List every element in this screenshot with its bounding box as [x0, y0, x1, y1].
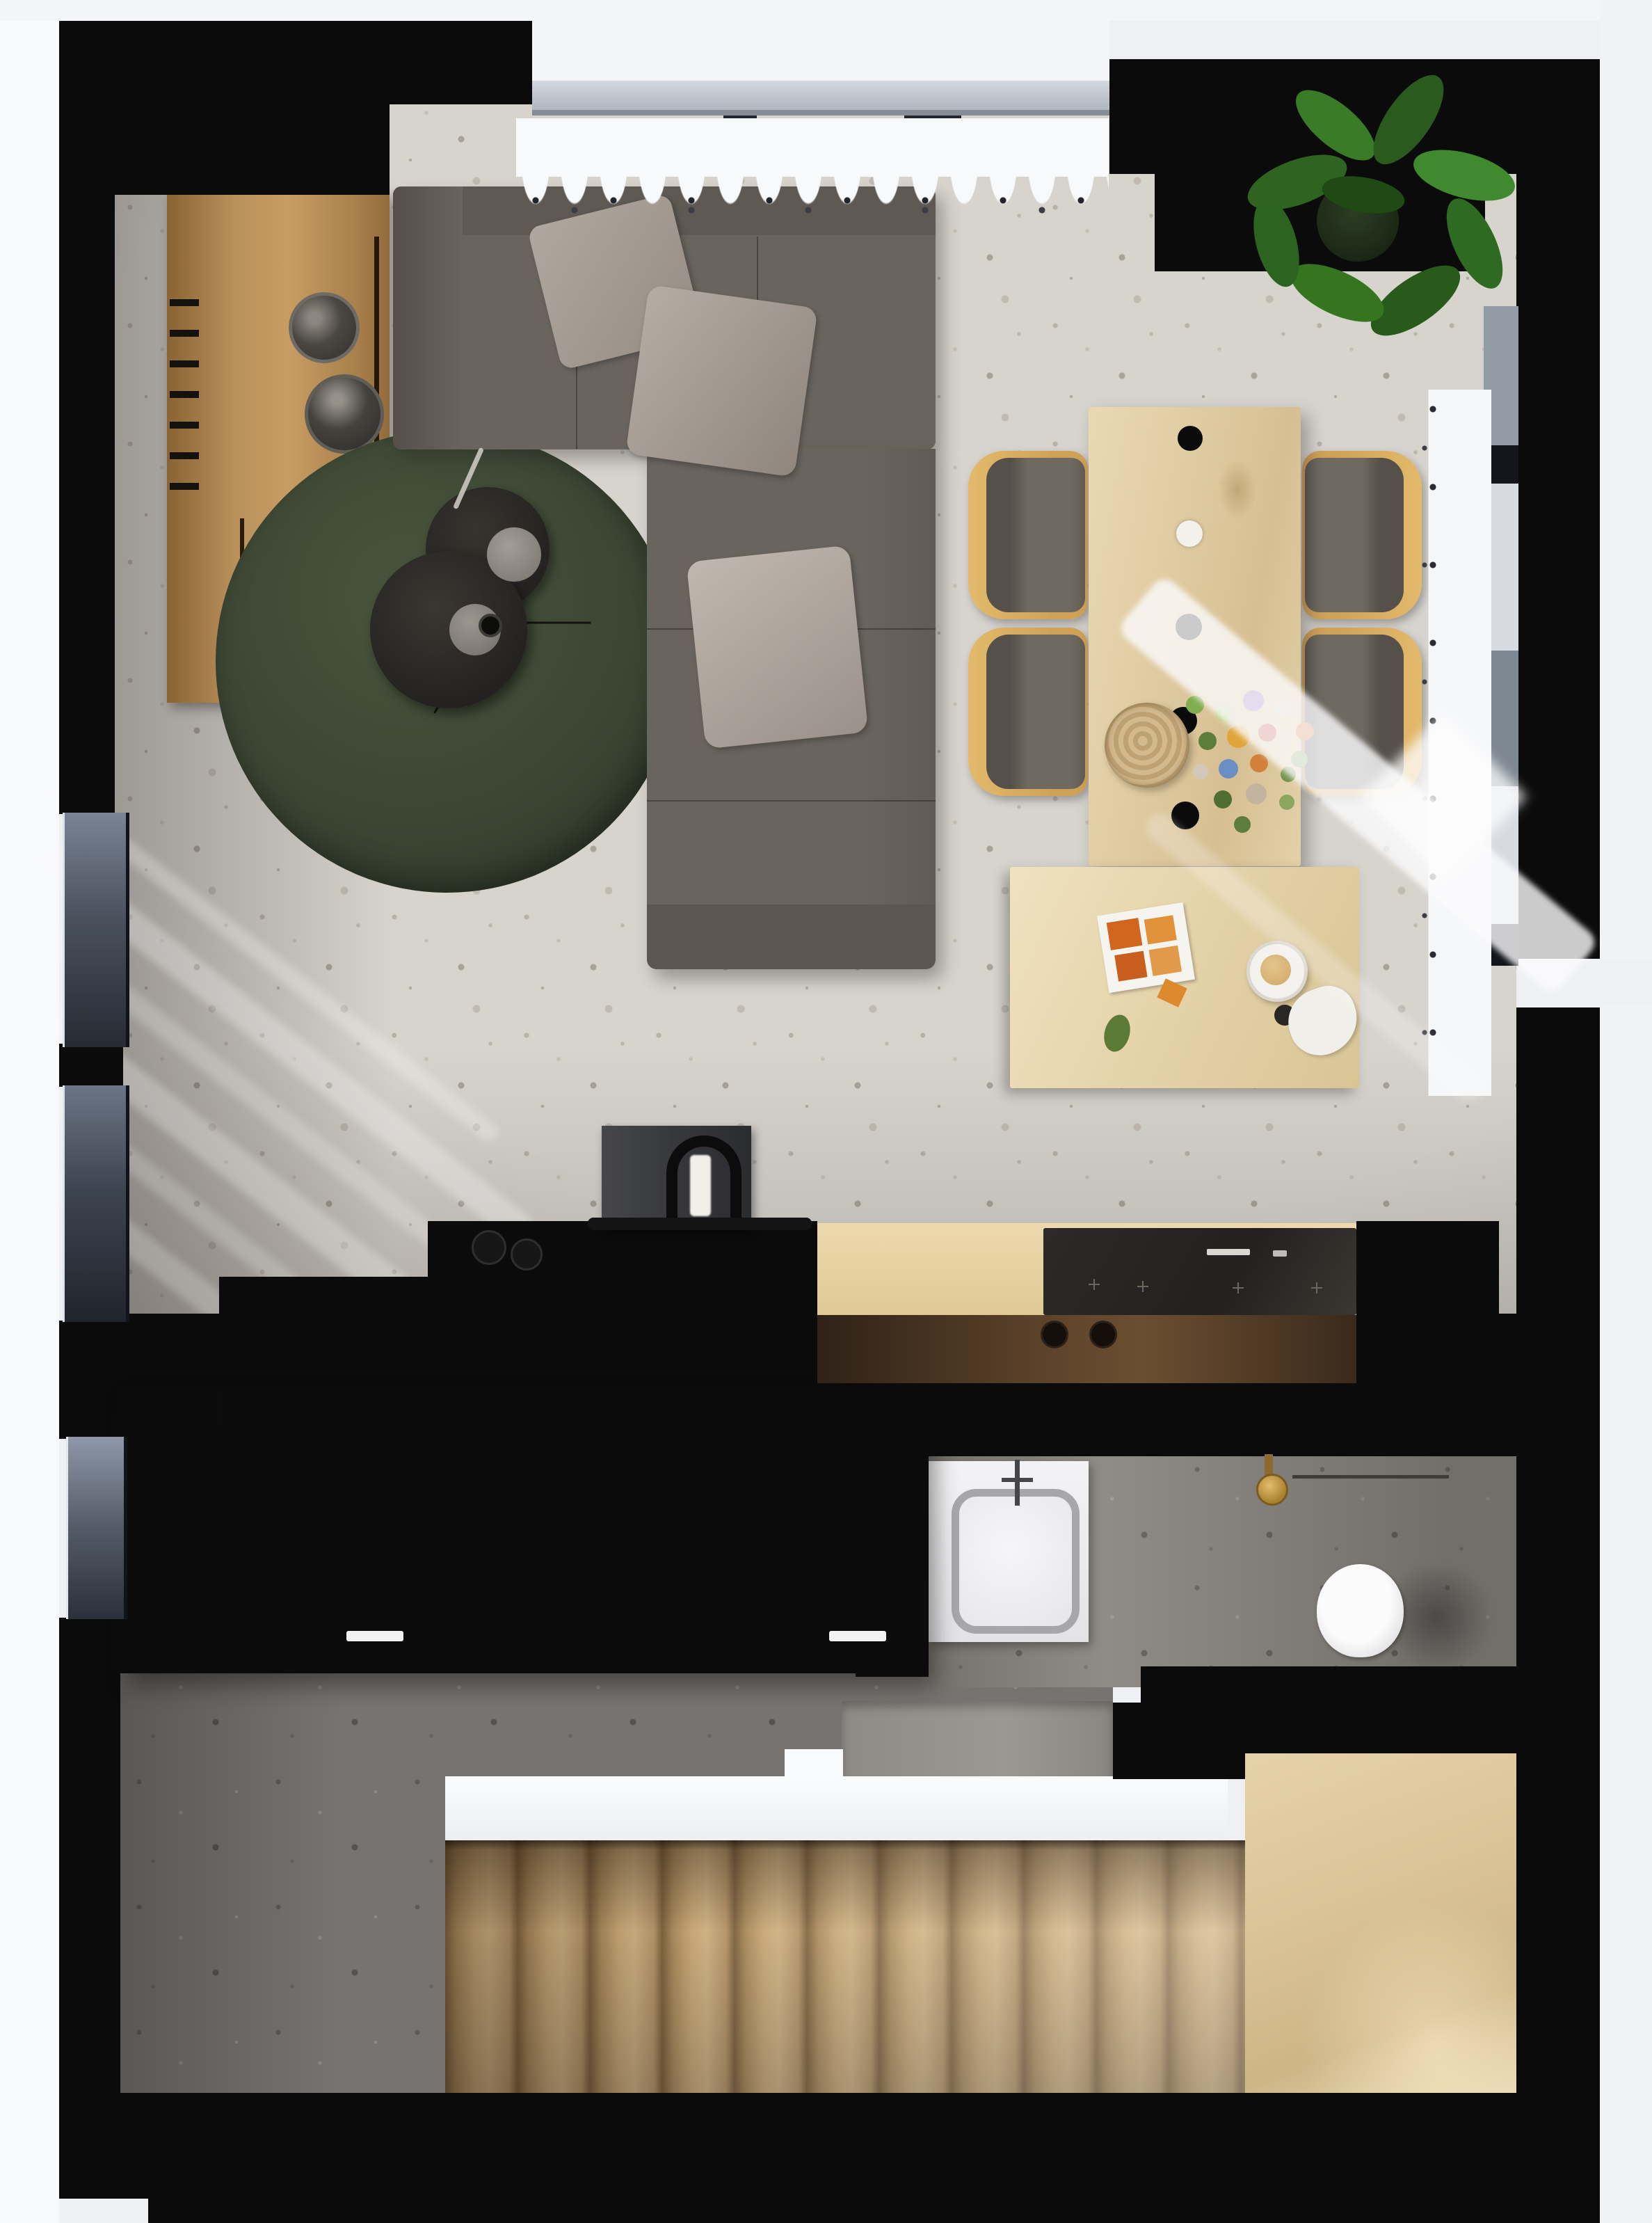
wall-right-upper — [1516, 59, 1600, 964]
kitchen-wood-floor-strip — [817, 1314, 1356, 1383]
radiator-fins — [170, 299, 199, 501]
sofa-chaise-end — [647, 905, 936, 969]
stairs-landing-notch — [785, 1749, 843, 1780]
chair-seat — [986, 635, 1085, 789]
bottle — [511, 1238, 543, 1270]
concrete-patch — [842, 1701, 1113, 1779]
stairs-treads — [445, 1840, 1245, 2099]
toilet — [1317, 1564, 1404, 1657]
control-knob — [1041, 1321, 1068, 1348]
hall-door-mark — [159, 1392, 164, 1428]
bathroom-wall-bottom-b — [1113, 1703, 1245, 1779]
wall-top-left — [59, 21, 532, 104]
sink-basin — [952, 1489, 1080, 1634]
sofa-pillow — [625, 285, 818, 477]
cooktop-burner-mark — [1311, 1282, 1322, 1293]
cooktop-label-small — [1273, 1250, 1287, 1257]
wall-right-lower — [1516, 1007, 1600, 2149]
sofa-left-arm — [393, 186, 463, 449]
island-handle — [346, 1631, 403, 1641]
cooktop-burner-mark — [1089, 1279, 1100, 1290]
cooktop-burner-mark — [1137, 1281, 1148, 1292]
wall-left-upper — [59, 21, 115, 814]
chair-seat — [1305, 458, 1404, 612]
wall-bottom — [59, 2093, 1600, 2223]
bathroom-wall-bottom-c — [1245, 1703, 1516, 1753]
sink-faucet-bar — [1002, 1478, 1033, 1482]
bottle — [472, 1230, 506, 1265]
chair-seat — [986, 458, 1085, 612]
left-window-glass — [63, 813, 129, 1047]
island-handle — [829, 1631, 886, 1641]
sofa-seam — [647, 800, 936, 802]
dining-chair — [968, 628, 1088, 796]
appliance-tray — [588, 1218, 812, 1230]
stairs-white-landing — [445, 1776, 1228, 1842]
decor-bowl — [289, 292, 360, 363]
dining-chair — [1302, 451, 1422, 619]
exterior-margin-right — [1600, 0, 1652, 2223]
kitchen-counter-step — [219, 1277, 817, 1315]
exterior-margin-left — [0, 0, 59, 2223]
wall-left-mid-a — [59, 1044, 123, 1087]
table-tray — [487, 527, 541, 582]
sink-faucet — [1015, 1460, 1020, 1506]
gold-faucet-head — [1256, 1474, 1288, 1506]
floor-plan-canvas — [0, 0, 1652, 2223]
exterior-sliver — [59, 2199, 148, 2223]
bathroom-wall-bottom-a — [1141, 1666, 1516, 1705]
control-knob — [1089, 1321, 1117, 1348]
cooktop-panel — [1043, 1228, 1356, 1315]
stairs-tread-shadow-line — [445, 1840, 1245, 1850]
top-window-sill — [532, 19, 1109, 81]
sofa-pillow — [687, 545, 869, 749]
top-window-frame-line — [532, 110, 1109, 115]
dining-chair — [968, 451, 1088, 619]
top-window-frame — [532, 81, 1109, 113]
cooktop-burner-mark — [1233, 1282, 1244, 1293]
table-hub — [479, 614, 502, 637]
hall-door-mark — [217, 1392, 223, 1428]
bathroom-wall-left — [856, 1454, 929, 1677]
left-window-glass — [63, 1085, 129, 1322]
exterior-margin-top — [0, 0, 1652, 21]
woven-bowl — [1105, 703, 1189, 788]
left-window-glass — [66, 1437, 127, 1619]
top-curtain — [516, 118, 1109, 231]
cooktop-label — [1207, 1249, 1250, 1255]
shower-rail — [1292, 1475, 1449, 1479]
mug-latte — [1260, 955, 1291, 985]
kitchen-island — [118, 1387, 925, 1673]
stairs-wood-platform — [1245, 1752, 1516, 2099]
pendant-lamp — [1178, 426, 1203, 451]
appliance-glow — [690, 1155, 711, 1216]
pendant-lamp-white — [1176, 520, 1203, 547]
card-art — [1107, 912, 1185, 984]
